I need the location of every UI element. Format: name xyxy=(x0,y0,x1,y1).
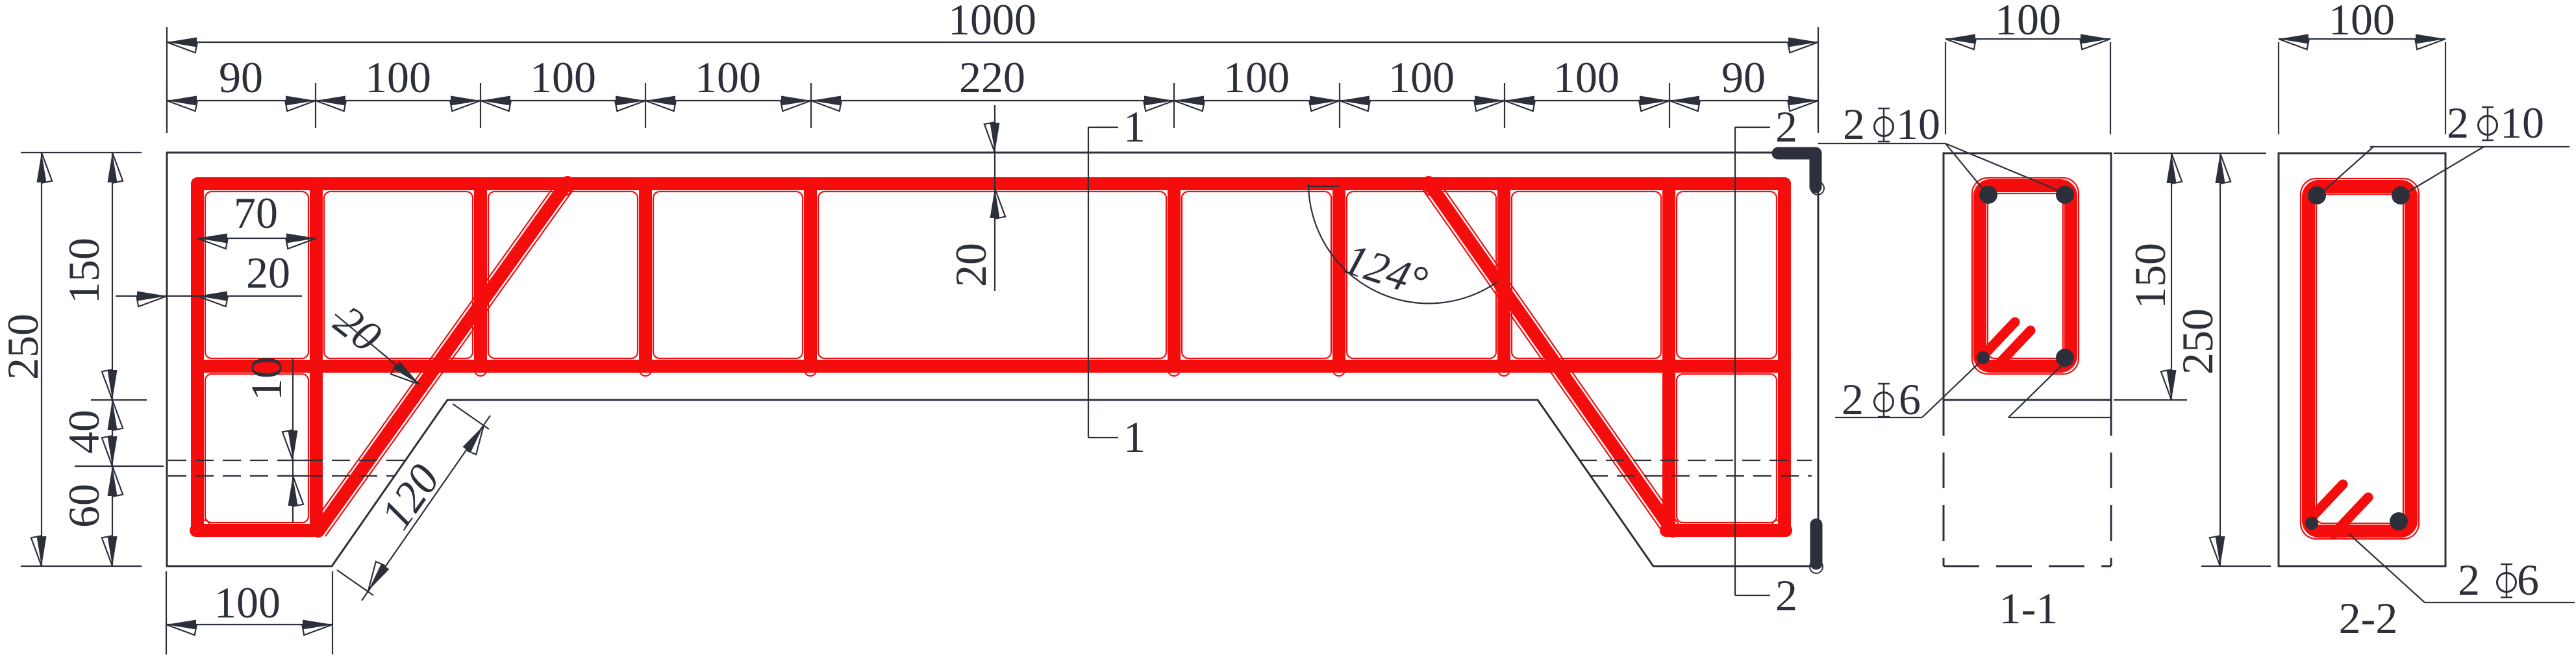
svg-text:2-2: 2-2 xyxy=(2339,593,2398,643)
svg-text:100: 100 xyxy=(1388,53,1455,102)
svg-text:20: 20 xyxy=(946,243,995,287)
svg-text:250: 250 xyxy=(2173,308,2222,375)
svg-text:10: 10 xyxy=(242,356,291,401)
svg-text:100: 100 xyxy=(365,53,431,102)
svg-text:2: 2 xyxy=(1842,375,1864,424)
svg-text:220: 220 xyxy=(959,53,1025,102)
svg-text:2: 2 xyxy=(2458,555,2480,604)
svg-text:2: 2 xyxy=(2447,98,2469,147)
svg-text:150: 150 xyxy=(59,238,108,304)
svg-text:2: 2 xyxy=(1843,99,1865,149)
svg-text:6: 6 xyxy=(2517,555,2539,604)
svg-text:100: 100 xyxy=(530,53,596,102)
svg-text:60: 60 xyxy=(59,484,108,528)
svg-text:40: 40 xyxy=(59,410,108,454)
svg-text:100: 100 xyxy=(1223,53,1290,102)
svg-text:1: 1 xyxy=(1123,412,1145,462)
svg-text:70: 70 xyxy=(234,188,278,238)
svg-text:10: 10 xyxy=(2500,98,2544,147)
svg-text:150: 150 xyxy=(2125,243,2175,309)
svg-text:90: 90 xyxy=(219,53,263,102)
svg-text:1-1: 1-1 xyxy=(1999,584,2058,633)
svg-text:10: 10 xyxy=(1896,99,1940,149)
svg-text:90: 90 xyxy=(1721,53,1766,102)
svg-text:1: 1 xyxy=(1123,102,1145,151)
svg-text:250: 250 xyxy=(0,314,47,380)
svg-text:100: 100 xyxy=(1995,0,2061,44)
svg-text:20: 20 xyxy=(246,248,290,297)
svg-text:1000: 1000 xyxy=(948,0,1036,44)
svg-text:6: 6 xyxy=(1899,375,1921,424)
svg-text:100: 100 xyxy=(2329,0,2395,44)
svg-text:2: 2 xyxy=(1775,571,1797,620)
svg-text:100: 100 xyxy=(1553,53,1619,102)
svg-text:100: 100 xyxy=(214,578,281,627)
svg-text:100: 100 xyxy=(695,53,761,102)
svg-text:2: 2 xyxy=(1775,102,1797,151)
